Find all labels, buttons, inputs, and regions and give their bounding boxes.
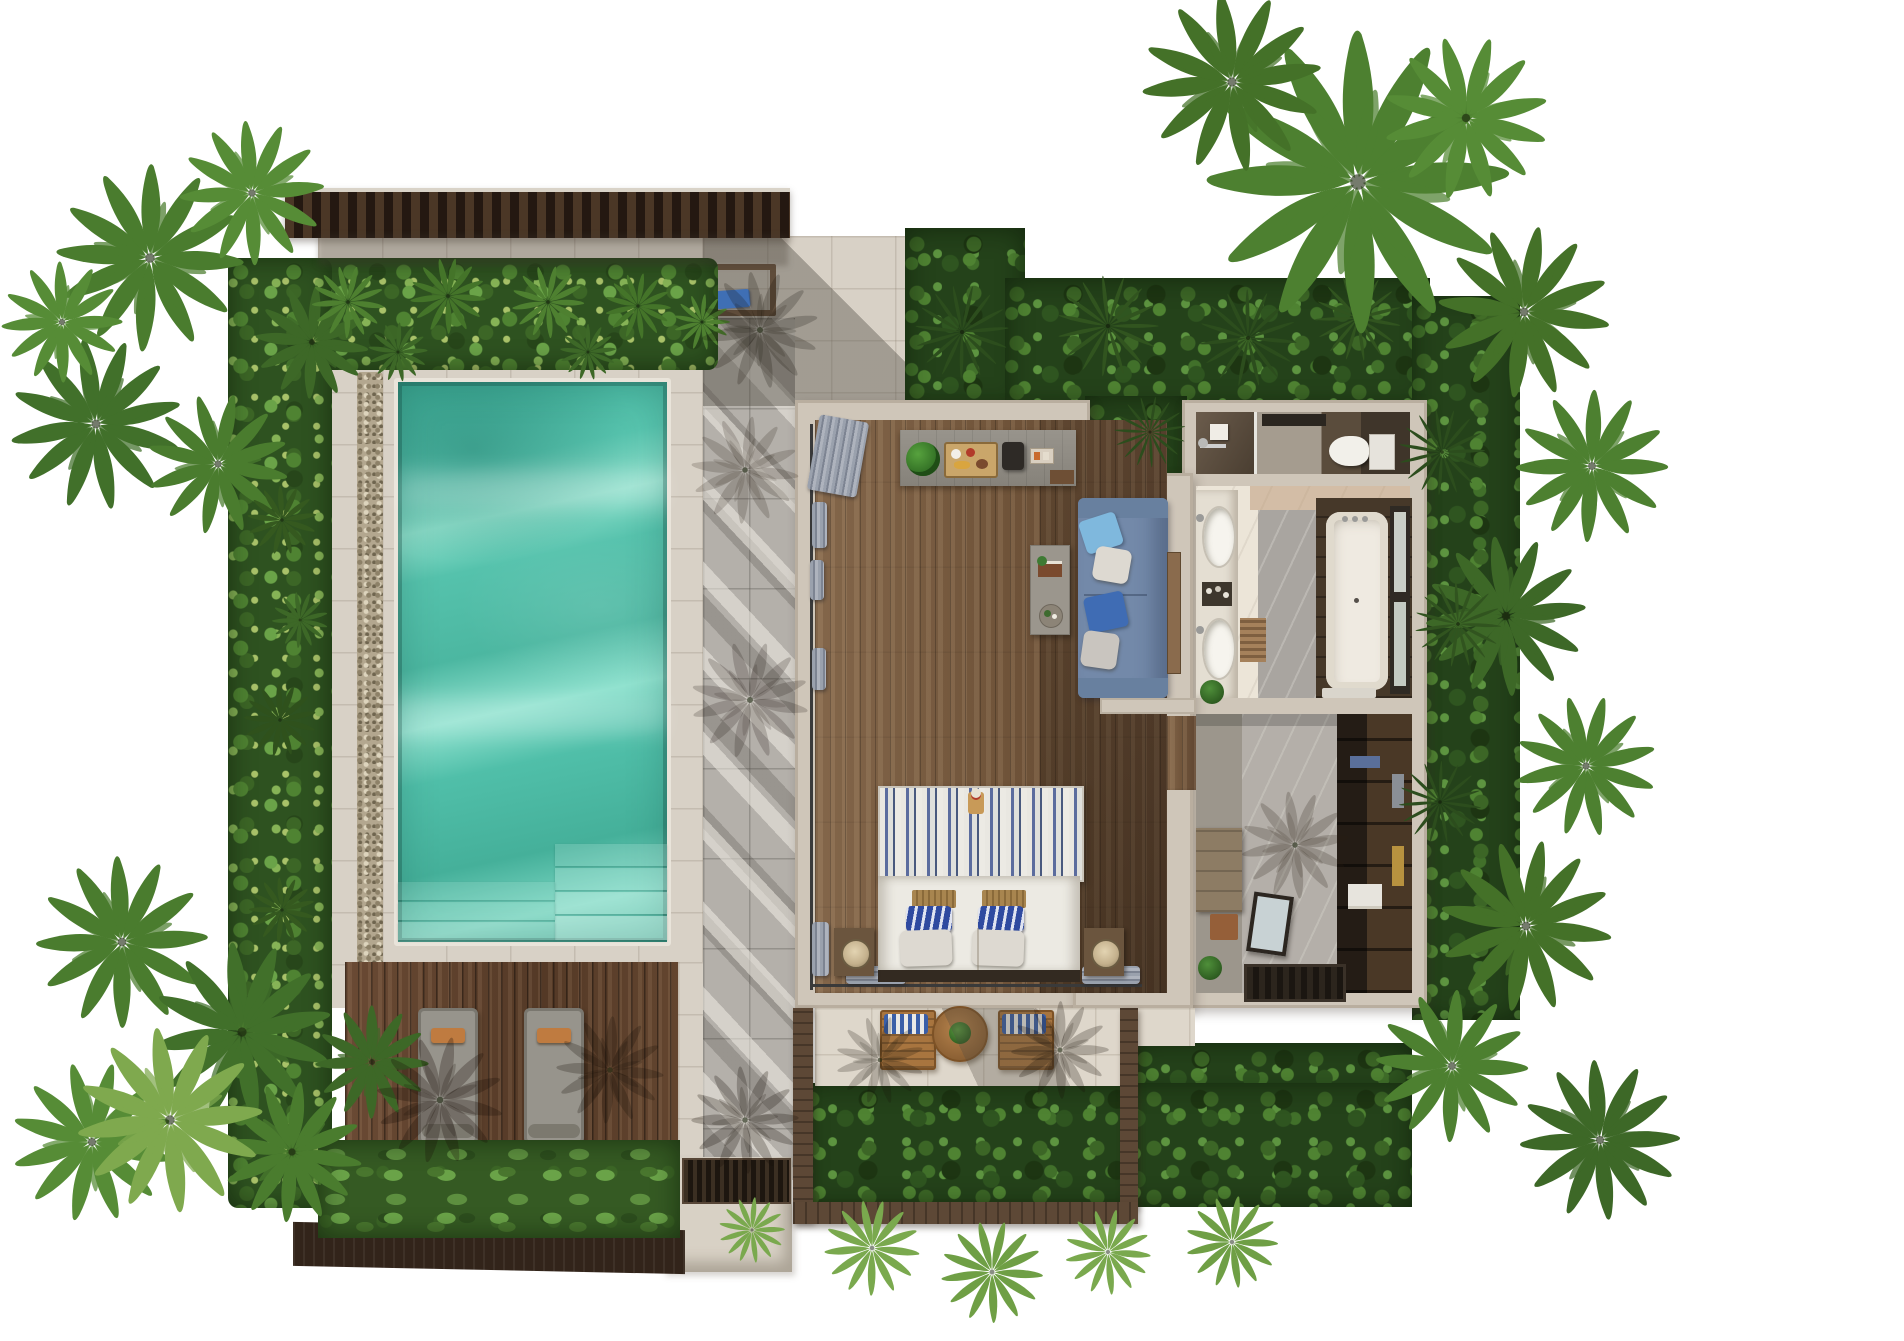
pool-corner-step (555, 844, 667, 866)
dresser-cabinet (1196, 828, 1242, 912)
hedge-left (228, 258, 332, 1208)
palm-coconut (1140, 0, 1324, 174)
hanging-garment (1392, 846, 1404, 886)
bottle (1223, 592, 1229, 598)
lounger-roll (422, 1124, 474, 1138)
tray-food (976, 459, 988, 469)
palm-coconut (1514, 388, 1670, 544)
court-roof-shadow (318, 236, 788, 266)
amenity-tray (1202, 582, 1232, 606)
bathroom-plant (1200, 680, 1224, 704)
bedside-lamp (1091, 939, 1121, 969)
bottle (1215, 586, 1221, 592)
lounger-roll (528, 1124, 580, 1138)
leather-mat (1210, 914, 1238, 940)
bathroom-window (1390, 506, 1410, 694)
shower-room-floor (1196, 412, 1254, 474)
pergola-beam-bottom (793, 1202, 1138, 1224)
palm-coconut (1518, 1058, 1682, 1222)
entry-door-mat (1244, 964, 1346, 1002)
bed-pillow-white (971, 929, 1024, 967)
coffee-table (1030, 545, 1070, 635)
nightstand-left (834, 928, 874, 976)
shower-head (1198, 438, 1208, 448)
faucet (1196, 626, 1204, 634)
tray-item (1044, 610, 1051, 617)
toilet-tank (1369, 434, 1395, 470)
bed-center-gap (977, 928, 979, 972)
bedside-lamp (841, 939, 871, 969)
palm-coconut (1382, 34, 1550, 202)
terrace-shadow (815, 1008, 1133, 1086)
wardrobe-plant (1198, 956, 1222, 980)
hanging-garment (1392, 774, 1404, 808)
timber-roof-edge (285, 188, 790, 238)
sun-lounger (524, 1008, 584, 1144)
bed-pillow-blue (906, 906, 952, 932)
bed-pillow-white (899, 929, 952, 967)
cup (1043, 452, 1049, 460)
wooden-box (1050, 470, 1074, 484)
pool-corner-step (555, 868, 667, 890)
bed-pillow-blue (978, 906, 1024, 932)
lounger-pillow-orange (537, 1028, 571, 1043)
palm-coconut (10, 1060, 174, 1224)
folded-clothes (1348, 884, 1382, 906)
shower-shelf (1210, 424, 1228, 440)
bath-towel (1322, 688, 1376, 698)
sink-oval (1202, 506, 1236, 568)
cup (1034, 452, 1040, 460)
flower (971, 788, 981, 798)
faucet (1196, 514, 1204, 522)
double-vanity (1196, 490, 1238, 698)
palm-coconut (8, 336, 184, 512)
towel-blue (715, 289, 750, 309)
pool-entry-step (398, 922, 555, 940)
sofa-pillow-gray (1080, 630, 1121, 671)
sofa-armrest (1078, 678, 1168, 698)
tray-food (966, 448, 975, 457)
sink-oval (1202, 618, 1236, 680)
wardrobe-closet (1337, 714, 1412, 993)
curtain-bundle (812, 502, 827, 548)
sofa-pillow-white (1091, 545, 1132, 585)
breakfast-tray (944, 442, 998, 478)
water-highlight (398, 698, 667, 736)
curtain-bundle (812, 648, 826, 690)
table-plant-sprig (1037, 556, 1047, 566)
bed-mattress (878, 876, 1080, 974)
sofa-pillow-blue (1083, 590, 1130, 634)
cup-tray (1030, 448, 1054, 464)
tub-faucet (1342, 516, 1348, 522)
villa-floor-plan (0, 0, 1904, 1341)
palm-coconut (0, 260, 124, 384)
wc-room-floor (1257, 412, 1410, 474)
window-glass (1394, 602, 1406, 686)
tray-food (951, 449, 961, 459)
terrace-paving-east (1133, 1008, 1195, 1046)
garden-right (1412, 296, 1520, 1020)
bed-footboard (878, 970, 1080, 982)
side-walkway (703, 318, 795, 1180)
palm-coconut (54, 162, 246, 354)
deck-side-strip (678, 962, 703, 1180)
pool-entry-step (398, 902, 555, 920)
table-round-tray (1039, 604, 1063, 628)
console-sideboard (900, 430, 1076, 486)
teak-bath-mat (1240, 618, 1266, 662)
lounger-pillow-orange (431, 1028, 465, 1043)
glass-door-frame (812, 984, 1142, 987)
palm-coconut (1514, 694, 1658, 838)
sofa (1078, 498, 1168, 698)
hedge-below-deck (318, 1140, 680, 1238)
toilet-bowl (1329, 436, 1369, 466)
pool-entry-step (398, 882, 555, 900)
tray-item (1052, 614, 1057, 619)
folded-clothes-blue (1350, 756, 1380, 768)
tray-food (954, 461, 970, 469)
canopy-flower-basket (968, 792, 984, 814)
palm-coconut (34, 854, 210, 1030)
coffee-machine (1002, 442, 1024, 470)
garden-terrace-hedge (800, 1083, 1412, 1207)
sofa-back-ledge (1167, 552, 1181, 674)
bottle (1206, 588, 1212, 594)
bed-canopy-striped (878, 786, 1084, 882)
garden-top (1005, 278, 1430, 410)
pool-corner-step (555, 892, 667, 914)
door-opening (1167, 716, 1196, 790)
sun-lounger (418, 1008, 478, 1144)
sun-deck (345, 962, 678, 1150)
swimming-pool (394, 378, 671, 946)
gravel-border (357, 372, 383, 984)
entry-grate (682, 1158, 791, 1204)
curtain-bundle (812, 922, 829, 976)
leaning-mirror (1246, 892, 1294, 957)
wall-stub (1100, 698, 1196, 714)
pool-corner-step (555, 916, 667, 940)
water-highlight (398, 470, 667, 506)
curtain-bundle (810, 560, 824, 600)
palm-fan (930, 1210, 1054, 1334)
pergola-post-left (793, 1008, 813, 1222)
window-glass (1394, 512, 1406, 592)
sofa-armrest (1078, 498, 1168, 518)
nightstand-right (1084, 928, 1124, 976)
tub-drain (1354, 598, 1359, 603)
monstera-plant (906, 442, 940, 476)
wall-shelf-dark (1262, 414, 1326, 426)
